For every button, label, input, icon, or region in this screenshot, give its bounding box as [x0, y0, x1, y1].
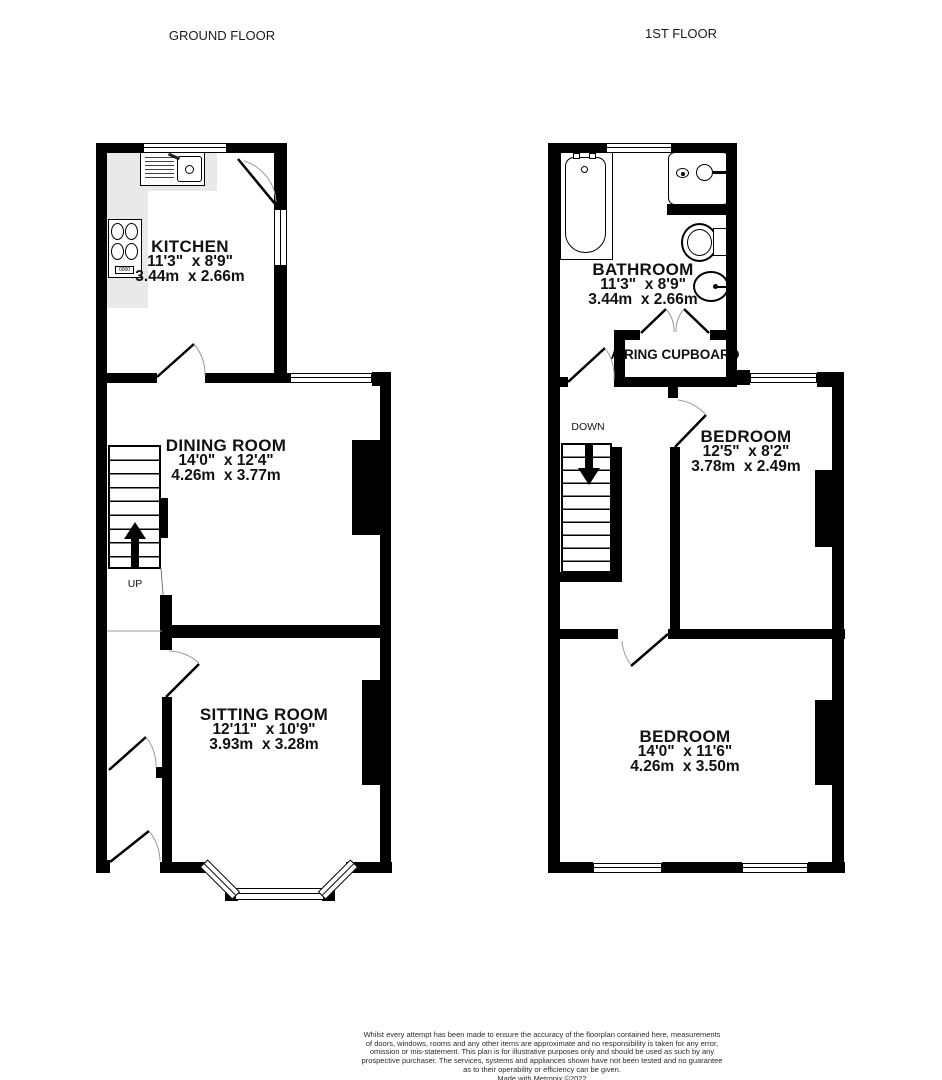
disclaimer-text: Whilst every attempt has been made to en… — [272, 1031, 812, 1080]
wall — [96, 373, 157, 383]
up-arrow-stem — [131, 537, 139, 567]
wall — [670, 447, 680, 630]
window — [606, 143, 672, 153]
room-size-metric: 3.44m x 2.66m — [90, 269, 290, 284]
room-name: BEDROOM — [585, 729, 785, 744]
wall — [662, 862, 742, 873]
room-label-airing-cupboard: AIRING CUPBOARD — [575, 347, 775, 362]
room-size-imperial: 14'0" x 11'6" — [585, 744, 785, 759]
wall — [668, 383, 678, 398]
room-name: BATHROOM — [543, 262, 743, 277]
wall — [274, 153, 287, 209]
made-with-text: Made with Metropix ©2022 — [272, 1075, 812, 1080]
bath-tap — [589, 153, 596, 159]
sink-bowl — [177, 156, 202, 182]
wall — [672, 143, 737, 153]
bay-window — [235, 888, 324, 900]
wall — [172, 625, 390, 638]
room-size-metric: 4.26m x 3.50m — [585, 759, 785, 774]
wall — [558, 572, 622, 582]
room-label-kitchen: KITCHEN 11'3" x 8'9" 3.44m x 2.66m — [90, 239, 290, 284]
wall — [96, 143, 143, 153]
room-size-imperial: 11'3" x 8'9" — [543, 277, 743, 292]
wall — [160, 595, 172, 650]
toilet-bowl — [687, 229, 712, 256]
room-label-bathroom: BATHROOM 11'3" x 8'9" 3.44m x 2.66m — [543, 262, 743, 307]
wall — [380, 383, 391, 635]
chimney-breast — [815, 470, 832, 547]
down-arrow — [578, 468, 600, 485]
sitting-room-door-swing — [166, 651, 199, 697]
wall — [551, 629, 618, 639]
wall — [548, 143, 606, 153]
room-name: BEDROOM — [646, 429, 846, 444]
draining-board — [145, 157, 174, 181]
shower — [668, 152, 730, 205]
room-size-imperial: 12'11" x 10'9" — [164, 722, 364, 737]
bedroom-front-door-swing — [622, 634, 668, 666]
room-size-metric: 3.44m x 2.66m — [543, 292, 743, 307]
wall — [205, 373, 290, 383]
wall — [548, 377, 568, 387]
burner — [125, 223, 138, 240]
bath — [560, 152, 613, 260]
ground-floor-title: GROUND FLOOR — [122, 28, 322, 43]
back-door-swing — [238, 159, 276, 205]
room-size-imperial: 14'0" x 12'4" — [126, 453, 326, 468]
wall — [227, 143, 287, 153]
wall — [667, 204, 730, 215]
bay-window — [318, 859, 358, 899]
wall — [735, 370, 750, 385]
room-name: SITTING ROOM — [164, 707, 364, 722]
wall — [548, 862, 593, 873]
down-arrow-stem — [585, 444, 593, 470]
stairs-up-label: UP — [115, 578, 155, 590]
window — [742, 863, 808, 873]
wall — [156, 767, 163, 778]
bath-drain — [581, 166, 588, 173]
wall — [380, 635, 391, 873]
room-name: KITCHEN — [90, 239, 290, 254]
bannister-line — [161, 568, 163, 595]
room-name: DINING ROOM — [126, 438, 326, 453]
first-floor-title: 1ST FLOOR — [581, 26, 781, 41]
wall — [808, 862, 845, 873]
kitchen-sink — [140, 152, 205, 186]
kitchen-door-swing — [157, 344, 205, 377]
wall — [548, 143, 560, 873]
shower-head — [696, 164, 713, 181]
window — [593, 863, 662, 873]
room-label-bedroom-front: BEDROOM 14'0" x 11'6" 4.26m x 3.50m — [585, 729, 785, 774]
window — [143, 143, 227, 153]
wall — [614, 330, 640, 340]
airing-cupboard-doors-swing — [641, 309, 709, 333]
wall — [668, 629, 845, 639]
room-size-imperial: 11'3" x 8'9" — [90, 254, 290, 269]
stairs-down-label: DOWN — [558, 421, 618, 433]
room-label-dining-room: DINING ROOM 14'0" x 12'4" 4.26m x 3.77m — [126, 438, 326, 483]
wall — [710, 330, 737, 340]
front-door-swing — [110, 831, 160, 862]
hall-door-swing — [109, 737, 156, 770]
shower-control — [676, 168, 689, 178]
room-label-sitting-room: SITTING ROOM 12'11" x 10'9" 3.93m x 3.28… — [164, 707, 364, 752]
wall — [96, 860, 110, 873]
chimney-breast — [362, 680, 380, 785]
room-label-bedroom-rear: BEDROOM 12'5" x 8'2" 3.78m x 2.49m — [646, 429, 846, 474]
chimney-breast — [815, 700, 832, 785]
floorplan-canvas: GROUND FLOOR 1ST FLOOR UP — [0, 0, 942, 1080]
window — [750, 373, 817, 383]
window — [290, 373, 372, 383]
wall — [160, 498, 168, 538]
sink-drain — [185, 165, 194, 174]
wall — [611, 447, 622, 582]
room-size-metric: 4.26m x 3.77m — [126, 468, 326, 483]
room-size-metric: 3.78m x 2.49m — [646, 459, 846, 474]
chimney-breast — [352, 440, 380, 535]
shower-control-dot — [681, 172, 685, 176]
room-size-imperial: 12'5" x 8'2" — [646, 444, 846, 459]
bath-tap — [573, 153, 580, 159]
wall — [160, 862, 206, 873]
burner — [111, 223, 124, 240]
room-size-metric: 3.93m x 3.28m — [164, 737, 364, 752]
bay-window — [200, 859, 240, 899]
